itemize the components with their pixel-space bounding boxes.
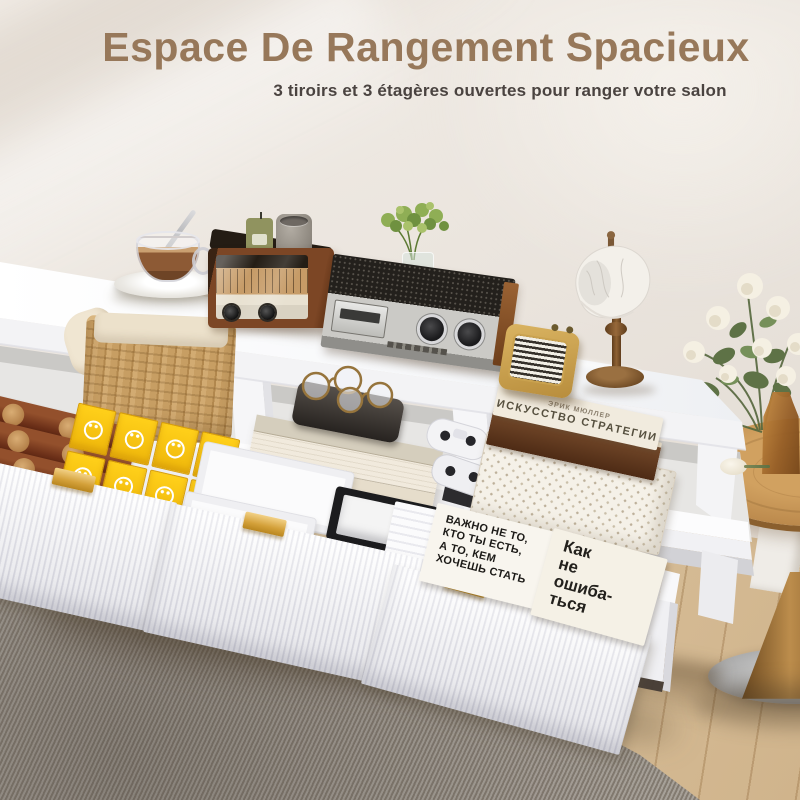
cassette-window	[331, 299, 389, 338]
radio-knob	[260, 305, 275, 320]
snack-box	[151, 422, 199, 475]
receiver-knob	[418, 315, 445, 342]
lamp-base	[586, 366, 644, 388]
table-lamp-shade	[556, 230, 666, 334]
speaker-grille	[507, 333, 570, 387]
rear-right-leg	[698, 550, 738, 624]
snack-box	[68, 403, 116, 456]
snack-box	[110, 412, 158, 465]
radio-knob	[224, 305, 239, 320]
vintage-radio	[208, 248, 334, 328]
product-hero-image: ЭРИК МЮЛЛЕР ИСКУССТВО СТРАТЕГИИ ВАЖНО НЕ…	[0, 0, 800, 800]
retro-speaker	[497, 323, 580, 400]
eyeglasses	[292, 356, 404, 432]
receiver-knob	[456, 321, 483, 348]
headline-block: Espace De Rangement Spacieux 3 tiroirs e…	[0, 0, 800, 101]
page-subtitle: 3 tiroirs et 3 étagères ouvertes pour ra…	[100, 81, 800, 101]
white-rose	[720, 458, 747, 475]
receiver-buttons	[387, 341, 447, 355]
page-title: Espace De Rangement Spacieux	[26, 26, 800, 69]
